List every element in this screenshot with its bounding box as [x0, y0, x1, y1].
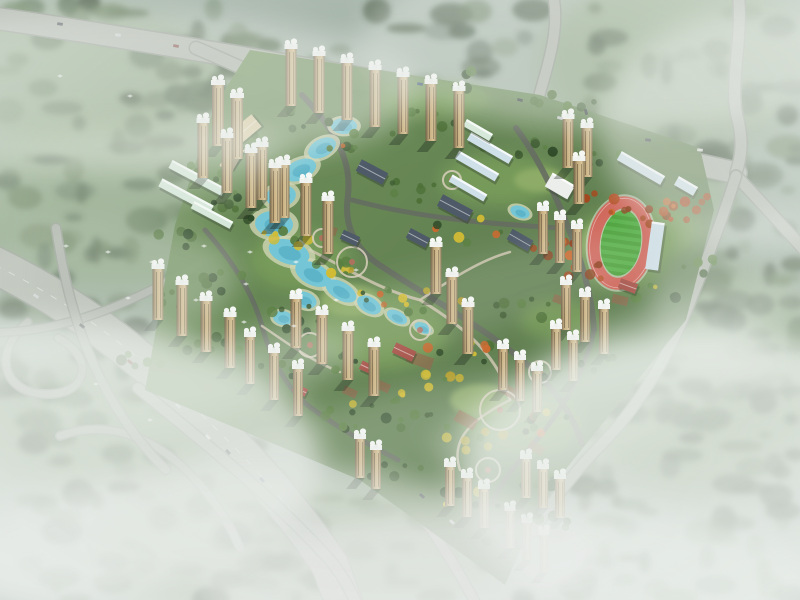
aerial-rendering — [0, 0, 800, 600]
haze-vignette — [0, 0, 800, 600]
aerial-rendering-canvas — [0, 0, 800, 600]
